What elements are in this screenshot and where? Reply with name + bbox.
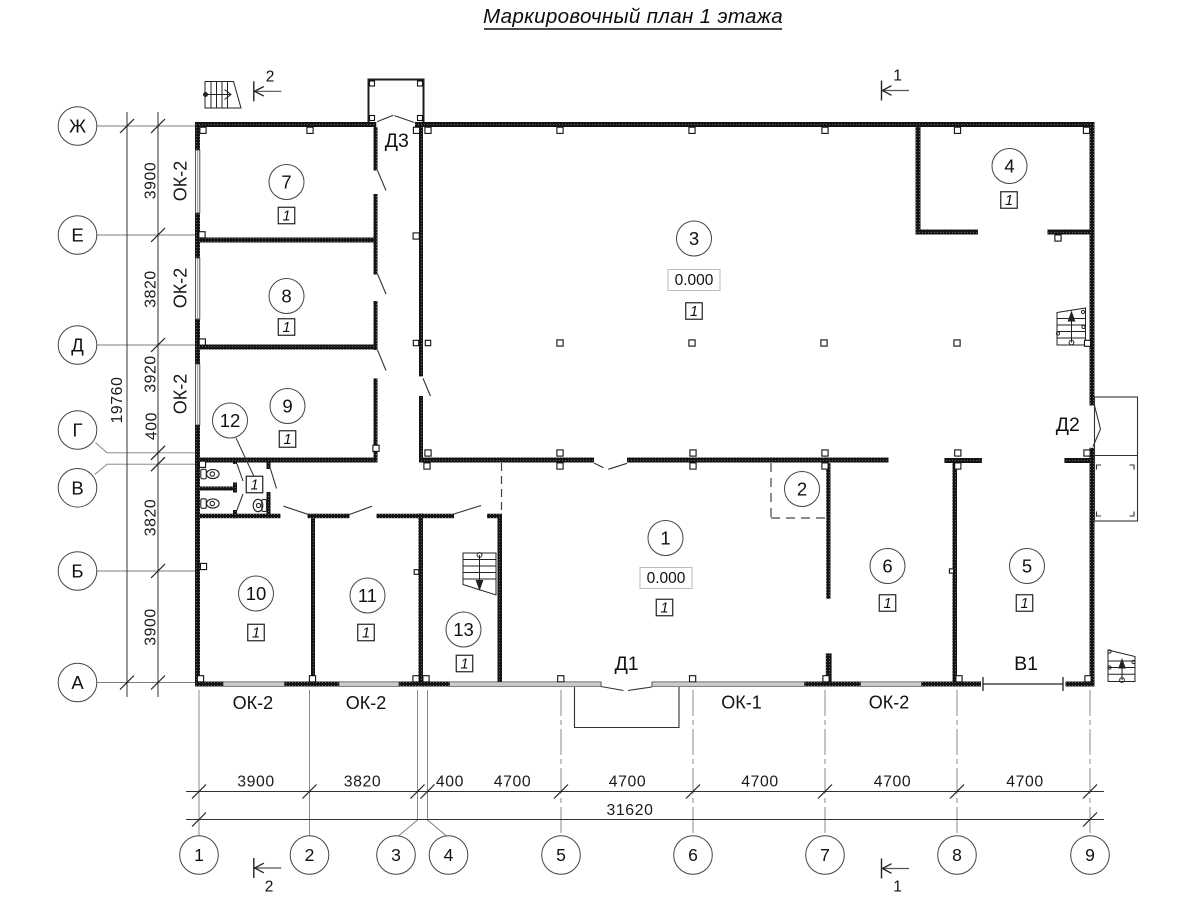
svg-text:ОК-2: ОК-2: [233, 693, 274, 713]
svg-text:4700: 4700: [874, 774, 912, 791]
svg-text:1: 1: [893, 68, 902, 85]
svg-text:13: 13: [453, 619, 474, 640]
svg-text:1: 1: [194, 845, 204, 865]
svg-text:1: 1: [283, 432, 291, 448]
svg-text:Маркировочный план 1 этажа: Маркировочный план 1 этажа: [483, 5, 783, 28]
svg-text:ОК-2: ОК-2: [171, 268, 191, 309]
svg-text:7: 7: [820, 845, 830, 865]
svg-text:2: 2: [305, 845, 315, 865]
svg-text:В1: В1: [1014, 653, 1038, 675]
svg-text:Д2: Д2: [1056, 414, 1080, 436]
svg-text:11: 11: [358, 585, 377, 606]
svg-text:1: 1: [660, 601, 668, 617]
svg-text:8: 8: [952, 845, 962, 865]
svg-text:3900: 3900: [142, 162, 159, 200]
svg-text:Б: Б: [71, 560, 83, 581]
svg-text:Г: Г: [72, 419, 82, 440]
svg-text:Д: Д: [71, 334, 84, 355]
svg-text:В: В: [71, 477, 83, 498]
svg-text:12: 12: [220, 410, 241, 431]
svg-text:3820: 3820: [142, 270, 159, 308]
svg-text:1: 1: [252, 626, 260, 642]
svg-text:4700: 4700: [609, 774, 647, 791]
svg-text:2: 2: [797, 478, 807, 499]
svg-text:ОК-2: ОК-2: [869, 693, 910, 713]
svg-text:Ж: Ж: [69, 115, 86, 136]
svg-text:ОК-2: ОК-2: [171, 374, 191, 415]
svg-text:400: 400: [143, 412, 160, 440]
svg-text:А: А: [71, 672, 84, 693]
svg-text:4700: 4700: [1006, 774, 1044, 791]
svg-text:4700: 4700: [494, 774, 532, 791]
svg-text:3: 3: [689, 228, 699, 249]
svg-text:5: 5: [1022, 555, 1032, 576]
svg-text:400: 400: [436, 774, 464, 791]
svg-text:19760: 19760: [109, 377, 126, 424]
svg-text:3900: 3900: [237, 774, 275, 791]
svg-text:9: 9: [282, 395, 292, 416]
svg-text:1: 1: [660, 527, 670, 548]
svg-text:2: 2: [266, 69, 275, 86]
svg-text:1: 1: [1005, 193, 1013, 209]
svg-text:ОК-2: ОК-2: [171, 161, 191, 202]
svg-text:0.000: 0.000: [675, 272, 714, 289]
svg-text:1: 1: [460, 657, 468, 673]
svg-text:7: 7: [281, 171, 291, 192]
svg-text:6: 6: [688, 845, 698, 865]
svg-text:8: 8: [281, 285, 291, 306]
svg-text:1: 1: [362, 626, 370, 642]
svg-text:3820: 3820: [142, 499, 159, 537]
svg-text:0.000: 0.000: [647, 570, 686, 587]
svg-text:Д1: Д1: [615, 653, 639, 675]
svg-text:1: 1: [282, 320, 290, 336]
svg-text:4700: 4700: [741, 774, 779, 791]
svg-text:5: 5: [556, 845, 566, 865]
svg-text:9: 9: [1085, 845, 1095, 865]
svg-text:3920: 3920: [142, 355, 159, 393]
svg-text:2: 2: [265, 879, 274, 896]
svg-text:Д3: Д3: [385, 130, 409, 152]
svg-text:1: 1: [893, 879, 902, 896]
svg-text:4: 4: [444, 845, 454, 865]
svg-text:1: 1: [690, 304, 698, 320]
svg-text:1: 1: [883, 596, 891, 612]
svg-text:ОК-1: ОК-1: [721, 693, 762, 713]
svg-text:Е: Е: [71, 224, 83, 245]
svg-text:1: 1: [1020, 596, 1028, 612]
svg-text:3: 3: [391, 845, 401, 865]
svg-text:1: 1: [250, 478, 258, 494]
svg-text:4: 4: [1004, 155, 1014, 176]
svg-text:3820: 3820: [344, 774, 382, 791]
svg-text:3900: 3900: [142, 608, 159, 646]
svg-text:6: 6: [882, 555, 892, 576]
svg-text:10: 10: [246, 583, 267, 604]
svg-text:31620: 31620: [607, 802, 654, 819]
svg-text:1: 1: [282, 209, 290, 225]
svg-text:ОК-2: ОК-2: [346, 693, 387, 713]
